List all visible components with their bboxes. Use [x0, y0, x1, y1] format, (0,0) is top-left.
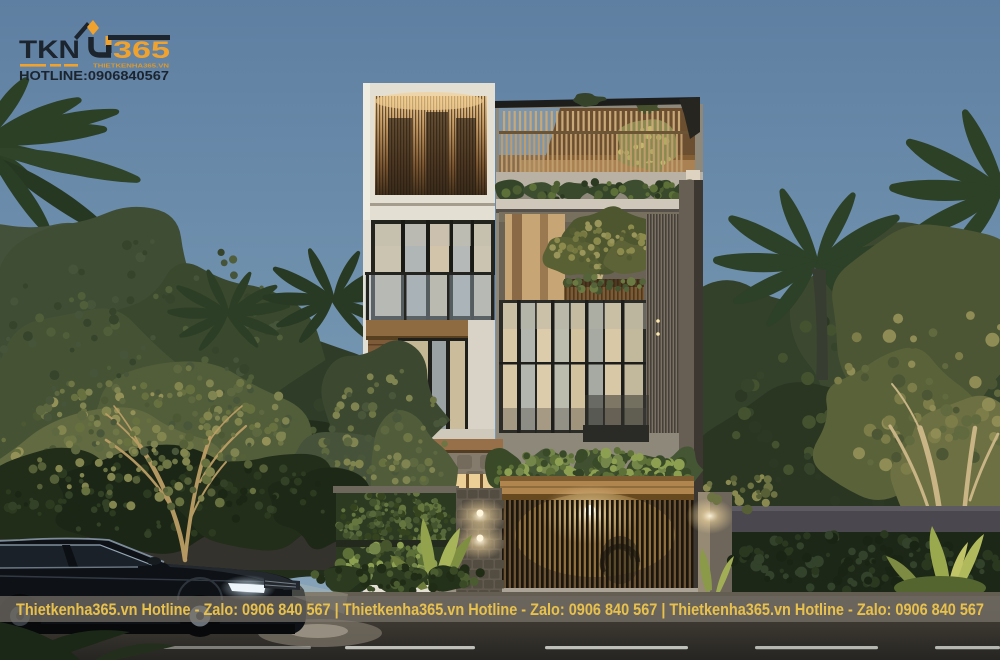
svg-text:TKN: TKN — [19, 36, 80, 64]
svg-text:HOTLINE:0906840567: HOTLINE:0906840567 — [19, 69, 169, 83]
svg-text:365: 365 — [113, 37, 170, 64]
svg-text:Thietkenha365.vn Hotline - Zal: Thietkenha365.vn Hotline - Zalo: 0906 84… — [16, 601, 984, 619]
